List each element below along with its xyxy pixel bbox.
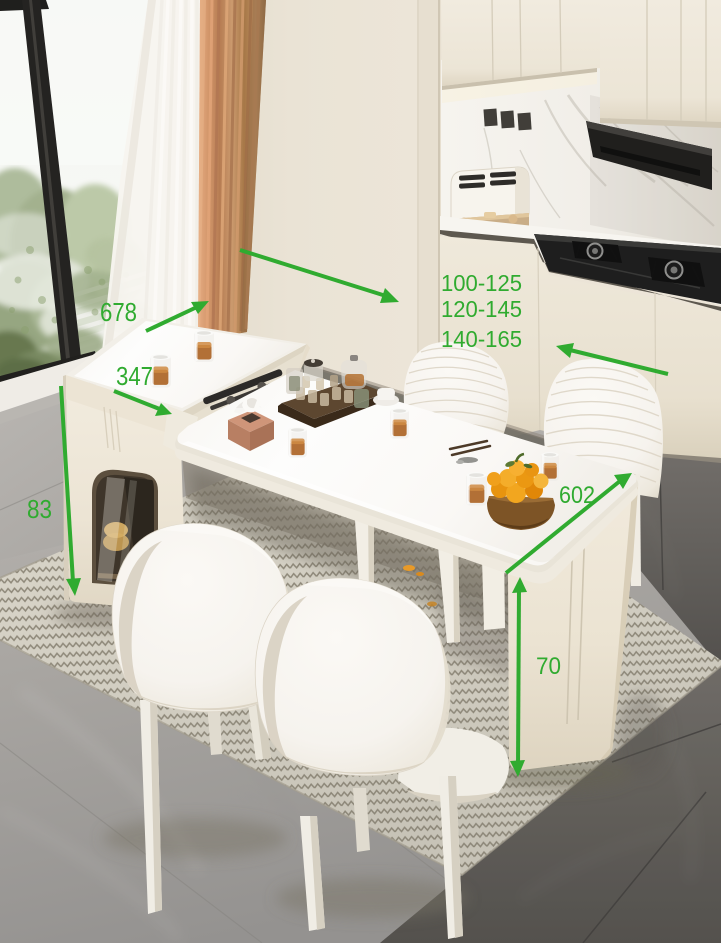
svg-text:120-145: 120-145 bbox=[441, 296, 522, 322]
svg-text:70: 70 bbox=[536, 653, 561, 680]
svg-text:678: 678 bbox=[100, 297, 137, 327]
svg-text:347: 347 bbox=[116, 361, 153, 391]
svg-text:83: 83 bbox=[27, 494, 52, 524]
svg-text:100-125: 100-125 bbox=[441, 270, 522, 296]
svg-text:140-165: 140-165 bbox=[441, 326, 522, 352]
